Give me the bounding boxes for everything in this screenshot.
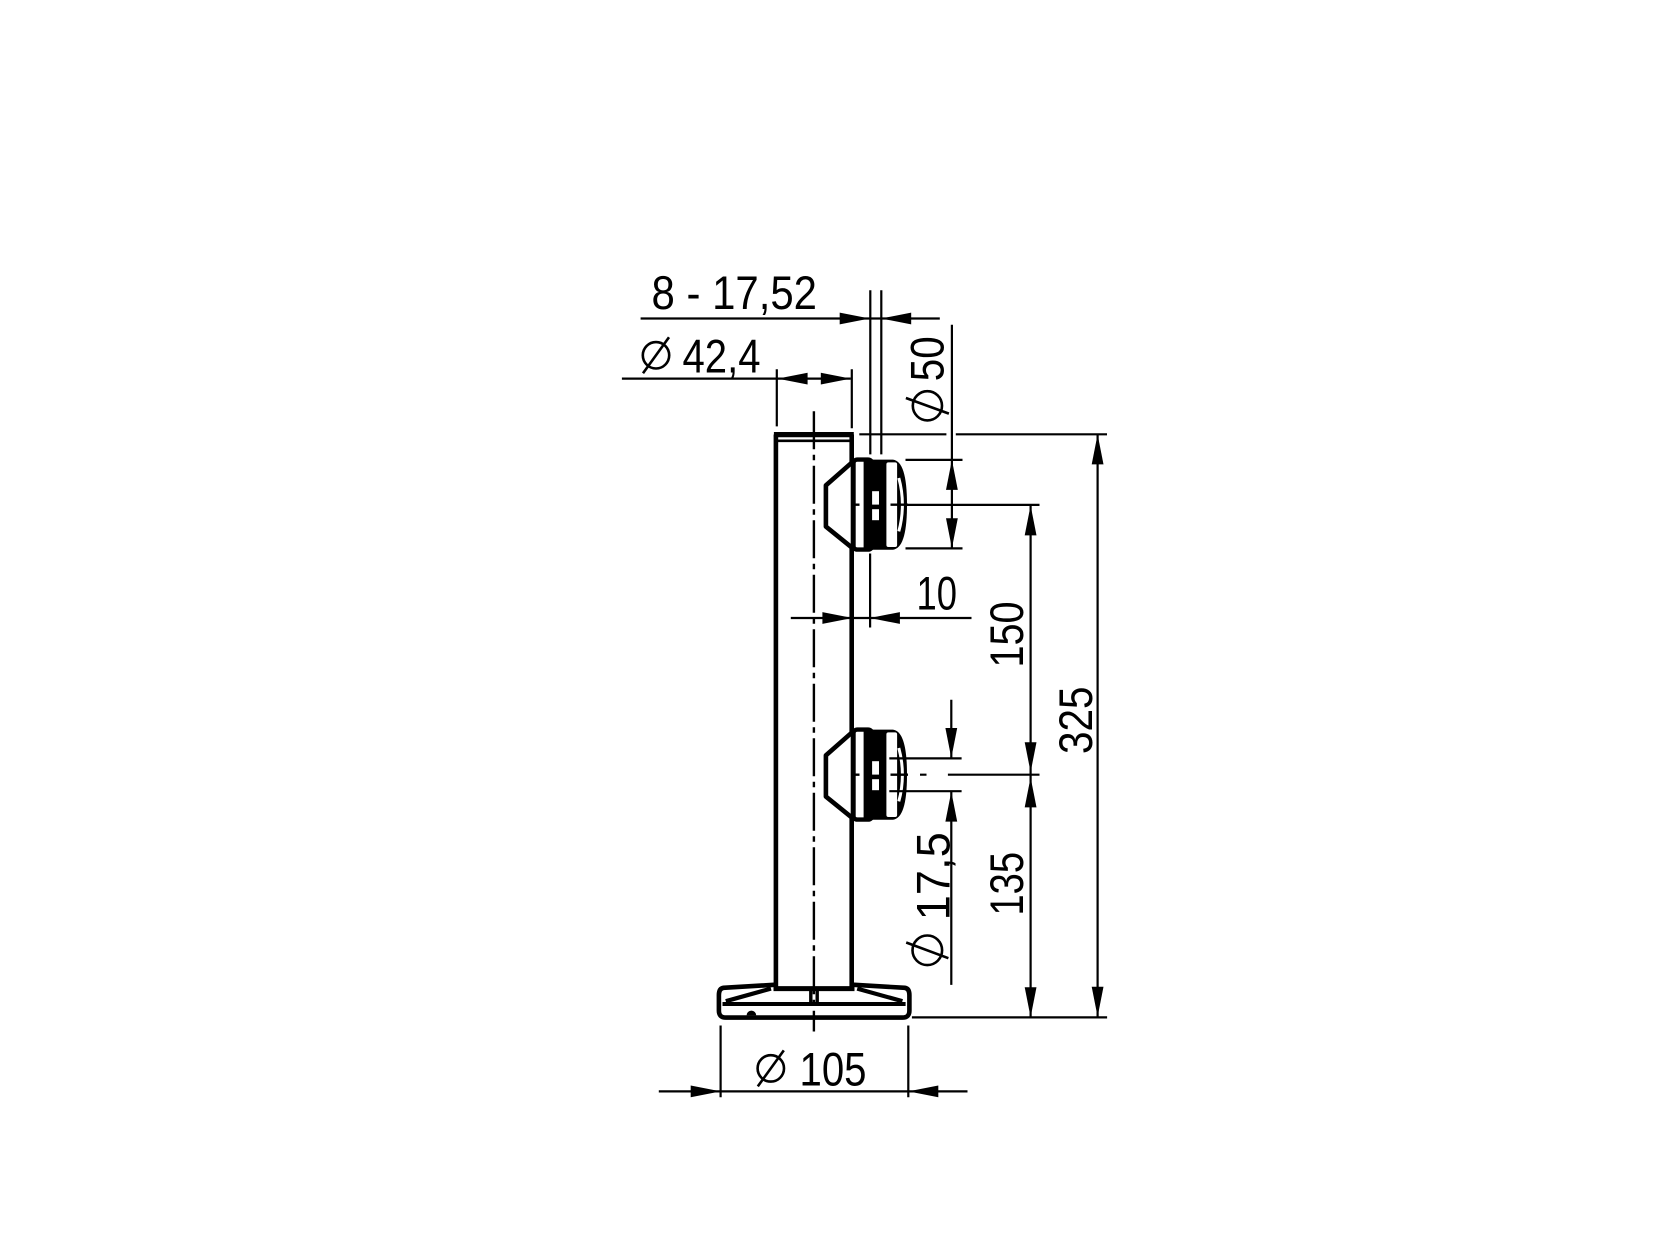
svg-text:50: 50 [901,336,954,381]
svg-text:150: 150 [980,602,1033,668]
svg-text:8 - 17,52: 8 - 17,52 [652,266,818,319]
svg-text:325: 325 [1049,687,1102,755]
svg-text:42,4: 42,4 [683,329,761,382]
svg-text:10: 10 [917,567,958,620]
svg-text:17,5: 17,5 [906,832,959,920]
svg-text:105: 105 [800,1043,867,1096]
svg-text:135: 135 [980,852,1033,916]
